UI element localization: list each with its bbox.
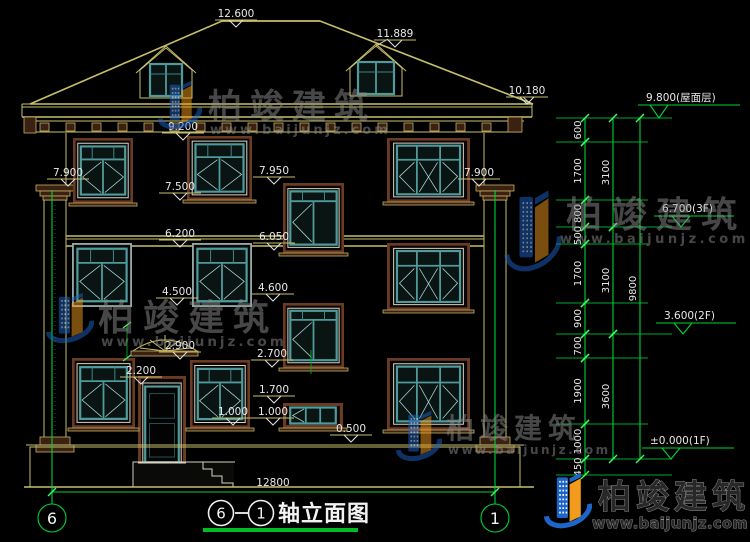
level-value: 12.600 [218, 8, 255, 20]
level-value: 7.500 [165, 181, 195, 193]
level-value: 2.200 [126, 365, 156, 377]
dim-value: 900 [573, 309, 584, 328]
dentil-block [404, 123, 413, 131]
dentil-block [118, 123, 127, 131]
window-sill [183, 200, 256, 203]
title-underline [203, 528, 358, 532]
title-axis-from: 6 [216, 505, 226, 523]
watermark-brand: 柏竣建筑 [446, 412, 582, 445]
level-value: 6.050 [259, 231, 289, 243]
level-marker: 1.700 [253, 384, 295, 403]
elevation-value: ±0.000(1F) [650, 435, 710, 447]
brand-name: 柏竣建筑 [598, 477, 750, 516]
window-sill [279, 253, 348, 256]
dentil-block [456, 123, 465, 131]
window-2f-right [388, 244, 469, 310]
dim-value: 1700 [573, 158, 584, 183]
dim-value: 700 [573, 336, 584, 355]
window-sill [69, 203, 137, 206]
window-stair-lower [284, 304, 344, 368]
title-axis-to: 1 [256, 505, 266, 523]
drawing-canvas: 12800 6 1 12.60011.88910.1809.2007.9007.… [0, 0, 750, 542]
dentil-block [66, 123, 75, 131]
window-1f-small [284, 404, 342, 427]
watermark-brand: 柏竣建筑 [208, 87, 376, 127]
watermark-url: www.baijunjz.com [448, 443, 611, 457]
axis-number-right: 1 [490, 509, 500, 528]
level-value: 4.600 [258, 282, 288, 294]
dentil-block [144, 123, 153, 131]
axis-number-left: 6 [47, 509, 57, 528]
overall-width-dim: 12800 [256, 477, 289, 489]
dentil-block [40, 123, 49, 131]
level-marker: 0.500 [330, 423, 372, 442]
watermark-url: www.baijunjz.com [101, 334, 287, 350]
elevation-marker: ±0.000(1F) [642, 435, 734, 459]
drawing-title: 轴立面图 [278, 501, 370, 527]
level-value: 11.889 [377, 28, 414, 40]
window-2f-left2 [193, 244, 252, 307]
dim-value: 1700 [573, 261, 584, 286]
window-sill [383, 310, 474, 313]
elevation-value: 3.600(2F) [664, 310, 715, 322]
level-value: 0.500 [336, 423, 366, 435]
dentil-block [430, 123, 439, 131]
watermark-brand: 柏竣建筑 [98, 298, 278, 339]
dim-value: 3100 [601, 268, 612, 293]
level-value: 7.900 [464, 167, 494, 179]
level-value: 1.000 [258, 406, 288, 418]
eave-corbel-left [24, 117, 36, 133]
watermark-right: 柏竣建筑 www.baijunjz.com [507, 190, 749, 268]
dim-value: 9800 [628, 276, 639, 301]
entry-door [139, 377, 185, 463]
dim-value: 3100 [601, 160, 612, 185]
dim-value: 1900 [573, 378, 584, 403]
dentil-block [92, 123, 101, 131]
window-sill [279, 368, 348, 371]
level-value: 6.200 [165, 228, 195, 240]
level-marker: 7.950 [253, 165, 295, 184]
level-value: 10.180 [509, 85, 546, 97]
watermark-url: www.baijunjz.com [210, 123, 391, 138]
elevation-value: 9.800(屋面层) [646, 92, 716, 104]
dim-value: 600 [573, 120, 584, 139]
level-value: 7.900 [53, 167, 83, 179]
level-value: 1.700 [259, 384, 289, 396]
window-3f-right [388, 139, 469, 202]
title-block: 6 1 轴立面图 [203, 501, 370, 533]
dim-value: 450 [573, 457, 584, 476]
window-3f-left2 [188, 137, 252, 200]
watermark-bottom: 柏竣建筑 www.baijunjz.com [398, 411, 610, 459]
dentil-block [482, 123, 491, 131]
window-sill [68, 428, 139, 431]
level-value: 4.500 [162, 286, 192, 298]
level-value: 7.950 [259, 165, 289, 177]
eave-corbel-right [508, 117, 522, 132]
window-sill [383, 202, 474, 205]
window-stair-upper [284, 184, 344, 253]
dim-value: 3600 [601, 384, 612, 409]
brand-logo-icon [546, 473, 589, 526]
window-sill [186, 428, 254, 431]
level-value: 1.000 [218, 406, 248, 418]
elevation-marker: 9.800(屋面层) [638, 92, 740, 118]
right-dimension-chains: 6001700800500170090070019001000450310031… [556, 92, 740, 479]
brand-url: www.baijunjz.com [592, 516, 748, 532]
cad-elevation-drawing: 12800 6 1 12.60011.88910.1809.2007.9007.… [0, 0, 750, 542]
watermark-logo-icon [507, 190, 559, 268]
elevation-marker: 3.600(2F) [656, 310, 736, 334]
watermark-url: www.baijunjz.com [560, 232, 749, 247]
watermark-brand: 柏竣建筑 [566, 195, 746, 236]
footer-brand: 柏竣建筑 www.baijunjz.com [546, 473, 750, 532]
